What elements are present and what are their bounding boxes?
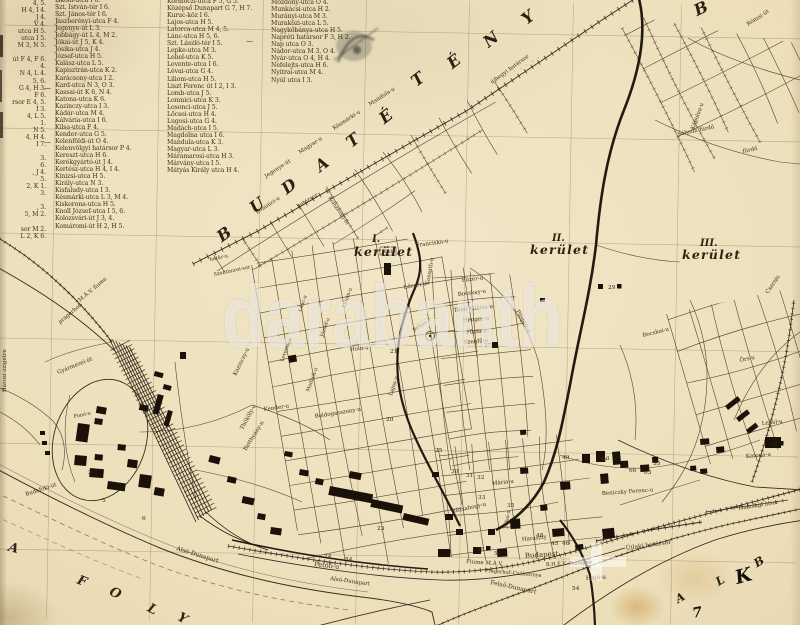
index-entry: Kuruc-köz I 6. [167,12,272,19]
slab-text: Hárosi-szigetre [1,349,8,392]
index-entry: , 3. [0,204,46,211]
index-entry: Munkácsi-utca H 2. [271,6,371,13]
numbered-site-square [493,342,498,347]
num-text: 2 [88,470,92,476]
building-block [40,431,45,435]
slab-text: Újlaki határsor [625,538,672,552]
index-entry: 3. [0,190,46,197]
index-entry: Késmárki-utca L 3, M 4. [55,194,165,201]
slab-text: Lehel-u [762,419,784,427]
index-entry: 2, K 1. [0,183,46,190]
index-entry: Mandula-utca K 3. [167,139,272,146]
index-entry [0,218,46,225]
building-block [242,496,255,505]
slab-text: Fonó-u [73,409,92,420]
slab-text: Bocskai-u [642,326,670,338]
dist-text: kerület [682,247,741,262]
slab-text: M.Á.V. fiume [77,275,109,303]
slab-text: Hajó-u [586,574,607,582]
big-text: B [690,0,713,20]
num-text: 23 [377,526,385,532]
map-line [410,134,459,215]
index-entry: Magyar-utca L 3. [167,146,272,153]
index-entry: N 5. [0,127,46,134]
building-block [560,481,571,490]
index-entry: Napréti határsor F 3, H 2. [271,34,371,41]
num-text: 5 [102,498,106,504]
map-line [271,252,321,543]
building-block [299,469,309,476]
index-entry: Liliom-utca H 5. [167,76,272,83]
index-entry: I 3. [0,106,46,113]
index-entry: Kisfaludy-utca I 3. [55,187,165,194]
index-entry: 3. [0,155,46,162]
shore-text: O [107,584,125,603]
index-entry: Kender-utca G 5. [55,131,165,138]
building-block [620,461,628,468]
slab-text: Beniczky Ferenc-u [602,487,654,497]
slab-text: fürdő [742,145,759,155]
building-block [257,513,266,520]
building-block [96,406,107,415]
index-entry: Madách-utca I 5. [167,125,272,132]
slab-text: Rózsahegy-u [451,501,487,515]
slab-text: Kossuth-u [425,257,436,286]
num-text: 57 [600,458,608,464]
building-block [117,444,126,451]
index-entry: 4, L 5. [0,113,46,120]
index-entry: L 2, K 6. [0,233,46,240]
index-entry: 4, H 4. [0,134,46,141]
building-block [288,355,297,363]
numbered-site-square [779,441,784,446]
map-line [241,237,293,322]
slab-text: Toldi Miklós-u [453,303,493,314]
shore-text: Y [175,610,192,625]
index-entry: Márvány-utca I 5. [167,160,272,167]
index-entry: G 4, H 3. [0,85,46,92]
danube-river [0,462,435,625]
index-entry: Nap utca O 3. [271,41,371,48]
kiln-dot [429,335,431,337]
index-entry: Lehel-utca K 5. [167,54,272,61]
index-entry: Kelenvölgyi határsor P 4. [55,145,165,152]
building-block [154,371,164,378]
index-entry: Lajos-utca H 5. [167,19,272,26]
map-line [449,517,603,536]
num-text: 48 [536,533,544,539]
slab-text: Mandula-u [368,86,397,108]
building-block [42,441,47,445]
big-text: D [277,173,302,198]
slab-text: Henger-u [463,316,490,324]
num-text: 38 [477,547,485,553]
index-entry: 5, M 2. [0,211,46,218]
index-entry: Nagykőbánya-utca H 5. [271,27,371,34]
index-entry: N 4, L 4. [0,70,46,77]
map-line [506,440,521,560]
index-entry: Kiskorona-utca H 5. [55,201,165,208]
slab-text: Franciska-u [415,238,449,249]
index-entry: Jósika-utca J 4. [55,46,165,53]
index-entry: 5. [0,176,46,183]
map-line [688,306,733,459]
index-entry: Lugosi-utca G 4. [167,118,272,125]
slab-text: Fiume M.Á.V. [466,558,504,568]
building-block [438,549,450,557]
slab-text: Római-út [745,8,771,28]
numbered-site-square [617,284,622,289]
map-line [508,262,530,486]
index-entry: 6. [0,162,46,169]
pen-text: K [732,563,756,589]
corner-text: L [712,572,727,589]
map-line [436,297,516,305]
index-entry: V 4. [0,21,46,28]
map-line [776,280,800,438]
index-entry: Kazinczy-utca I 3. [55,103,165,110]
map-line [560,520,800,625]
index-entry: út F 4, F 6. [0,56,46,63]
index-entry: 5, 6. [0,78,46,85]
map-line [260,277,470,313]
building-block [700,438,709,445]
building-block [74,455,87,466]
building-block [107,481,126,491]
index-entry: 4. [0,63,46,70]
index-entry: Nefelejts-utca H 6. [271,62,371,69]
index-entry: Jobbágy-út L 4, M 2. [55,32,165,39]
building-block [552,528,565,537]
index-entry: Kalász-utca L 5. [55,60,165,67]
index-entry: rsor E 4, 5. [0,99,46,106]
building-block [598,284,603,289]
index-entry: Kerékgyártó-út J 4. [55,159,165,166]
map-line [241,237,293,322]
index-entry: Kapisztrán-utca K 2. [55,67,165,74]
big-text: É [442,48,466,73]
slab-text: Petőfi-u [314,559,340,571]
num-text: 55 [653,461,661,467]
dist-text: kerület [354,244,413,259]
num-text: 24 [324,554,332,560]
num-text: 25 [435,448,443,454]
index-entry [0,49,46,56]
index-entry: Kard-utca N 3, O 3. [55,82,165,89]
num-text: 21 [390,349,397,355]
index-entry: Lőcsei-utca H 4. [167,111,272,118]
slab-text: Késmárki-u [331,108,362,131]
num-text: 31 [466,473,473,479]
building-block [75,423,89,442]
index-entry: 4, 5. [0,0,46,7]
index-entry: Kilsa-utca F 4. [55,124,165,131]
street-fan [666,280,800,464]
shore-text: L [144,600,161,618]
slab-text: Fűzfa-u [466,327,488,336]
slab-text: Kolozsvári-út [326,195,351,226]
building-block [520,467,528,474]
building-block [138,474,152,489]
index-entry: , J 4. [0,169,46,176]
num-text: 6 [142,516,146,522]
building-block [270,527,282,535]
num-text: 29 [608,285,616,291]
index-entry: Lévai-utca G 4. [167,68,272,75]
building-blocks [40,263,781,557]
building-block [284,451,293,457]
num-text: 35 [507,503,515,509]
num-text: 12 [770,442,778,448]
building-block [208,455,220,464]
corner-text: A [672,589,688,606]
big-text: N [478,26,504,52]
num-text: 33 [478,495,486,501]
index-entry: Nyitrai-utca M 4. [271,69,371,76]
index-entry: Lomnici-utca K 3. [167,97,272,104]
slab-text: Alsó-Dunapart [329,575,371,588]
building-block [510,518,521,529]
index-entry: Losonci-utca J 5. [167,104,272,111]
index-col2: Iskola-utca I 6.Szt. István-tér I 6.Szt.… [55,0,165,230]
big-text: U [246,192,270,217]
corner-text: B [750,553,767,571]
index-entry: utca I 5. [0,35,46,42]
num-text: 54 [345,557,353,563]
num-text: 32 [477,475,485,481]
map-line [495,83,551,176]
numbered-site-square [486,546,491,551]
map-line [310,600,430,625]
building-block [180,352,186,359]
map-line [710,299,757,460]
rail-loop-oval [37,367,163,513]
index-entry: sor M 2. [0,226,46,233]
slab-text: Thököly-u [239,403,257,430]
pen2-text: 7 [691,604,704,621]
index-entry: Szt. László-tér I 5. [167,40,272,47]
slab-text: határ-u. [209,252,230,263]
map-line [446,403,535,412]
map-line [354,168,396,237]
slab-text: Budafoki-út [24,481,58,498]
big-text: A [310,152,335,177]
index-entry: Lánc-utca H 5, 6. [167,33,272,40]
num-text: 54 [572,586,580,592]
building-block [520,430,526,435]
map-line [441,459,578,476]
building-block [612,451,621,465]
index-entry: Jászberényi-utca F 4. [55,18,165,25]
shore-text: F [74,573,90,591]
building-block [432,472,439,477]
map-line [457,220,507,509]
index-entry: Liszt Ferenc út I 2, I 3. [167,83,272,90]
slab-text: Pragerhof–Csáktornya [485,567,542,579]
map-line [250,256,297,531]
index-entry: utca H 5. [0,28,46,35]
building-block [582,454,590,463]
num-text: 27 [484,343,492,349]
building-block [94,454,102,461]
slab-text: Felső-Dunapart [490,579,538,596]
index-entry: M 3, N 5. [0,42,46,49]
index-entry: Lomb-utca J 5. [167,90,272,97]
index-entry [0,148,46,155]
slab-text: Hold-u [350,345,370,353]
slab-text: Gyármezei-út [56,355,94,376]
slab-text: Kazinczy-u [232,347,251,377]
index-col4: Mozdony-utca O 4.Munkácsi-utca H 2.Murán… [271,0,371,84]
index-col3: Körmöczi-utca F 5, G 5.Középső Dunapart … [167,0,272,174]
slab-text: Örs-u [739,354,756,364]
street-fan [432,262,551,499]
num-text: 66 [629,468,637,474]
index-entry: Latorca-utca M 4, 5. [167,26,272,33]
index-entry: Mátyás Király utca H 4. [167,167,272,174]
index-entry: Középső Dunapart G 7, H 7. [167,5,272,12]
slab-text: Mária-u [491,478,514,487]
street-fan [622,0,800,172]
building-block [315,478,324,485]
index-entry: Murányi-utca M 3. [271,13,371,20]
index-entry: Levente-utca I 6. [167,61,272,68]
num-text: 30 [451,469,459,475]
big-text: B [212,221,237,246]
slab-text: Csertés [764,274,782,296]
index-entry: Magdolna utca I 6. [167,132,272,139]
num-text: 46 [562,541,570,547]
dist-text: kerület [530,242,589,257]
index-entry: Nyúl utca I 3. [271,77,371,84]
map-line [277,379,465,411]
index-entry: Jókai-út J 5, K 4. [55,39,165,46]
index-entry: Nádor-utca M 3, O 4. [271,48,371,55]
index-entry: I 7. [0,141,46,148]
map-line [285,420,524,461]
building-block [163,384,172,391]
slab-text: Szentimrei-sor [213,264,251,278]
big-text: É [374,103,398,128]
building-block [700,468,707,474]
map-line [228,488,800,572]
map-line [126,346,209,513]
building-block [384,263,391,275]
index-entry: Kolozsvári-út J 3, 4. [55,215,165,222]
street-network [206,0,800,583]
index-entry: Kassai-út K 6, N 4. [55,89,165,96]
building-block [45,451,50,455]
index-entry: Kinizsi-utca H 5. [55,173,165,180]
slab-text: határsor [295,191,319,209]
slab-text: Madách-u [304,366,319,393]
building-block [349,471,362,480]
index-entry: Király-utca N 3. [55,180,165,187]
map-line [467,100,526,196]
map-line [264,301,475,338]
index-entry: József-utca H 5. [55,53,165,60]
num-text: 45 [551,541,559,547]
index-entry: Katona-utca K 6. [55,96,165,103]
index-entry: Kertész-utca H 4, I 4. [55,166,165,173]
index-entry: Karácsony-utca I 2. [55,75,165,82]
index-entry: Kelenföldi-út O 4. [55,138,165,145]
num-text: 63 [644,470,652,476]
building-block [725,396,741,410]
map-line [410,134,459,215]
index-entry: Kádár-utca M 4. [55,110,165,117]
building-block [540,504,548,511]
building-block [154,487,165,497]
map-line [751,0,800,87]
slab-text: Lánc-u [296,293,309,312]
slab-text: Katona-u [746,452,772,460]
map-scan-page: határsorújhegyi határsorGyármezei-útM.Á.… [0,0,800,625]
index-entry: Máramarosi-utca H 3. [167,153,272,160]
index-entry: Kereszt-utca H 6. [55,152,165,159]
shore-text: A [5,539,22,557]
big-text: T [407,67,430,91]
num-text: 20 [386,417,394,423]
index-entry [0,197,46,204]
slab-text: pragerhof [57,302,83,325]
index-entry: Nyár-utca O 4, H 4. [271,55,371,62]
index-entry: Muraközi-utca L 5. [271,20,371,27]
building-block [227,476,237,484]
big-text: T [342,128,365,152]
index-entry: H 4, I 4. [0,7,46,14]
index-entry: F 6. [0,92,46,99]
main-roads [232,0,642,625]
building-block [456,529,463,535]
index-entry: Komáromi-út H 2, H 5. [55,223,165,230]
map-line [452,456,552,466]
index-col1: 4, 5.H 4, I 4.J 4.V 4.utca H 5.utca I 5.… [0,0,46,240]
index-entry: Jegenye-út L 3. [55,25,165,32]
index-entry: Szt. István-tér I 6. [55,4,165,11]
building-block [127,459,138,468]
building-block [540,298,545,302]
map-line [489,264,512,489]
index-entry: Szt. János-tér I 6. [55,11,165,18]
building-block [488,529,495,535]
building-block [600,473,609,484]
building-block [94,418,103,425]
big-text: Y [517,5,539,28]
num-text: 58 [494,551,502,557]
index-entry: 1. [0,120,46,127]
building-block [602,528,615,539]
building-block [716,446,724,453]
index-entry: Kálvária-utca I 6. [55,117,165,124]
index-entry: Lepke-utca M 3. [167,47,272,54]
building-block [690,465,696,471]
index-entry: Knoll József-utca I 5, 6. [55,208,165,215]
index-entry: J 4. [0,14,46,21]
num-text: 49 [562,455,570,461]
